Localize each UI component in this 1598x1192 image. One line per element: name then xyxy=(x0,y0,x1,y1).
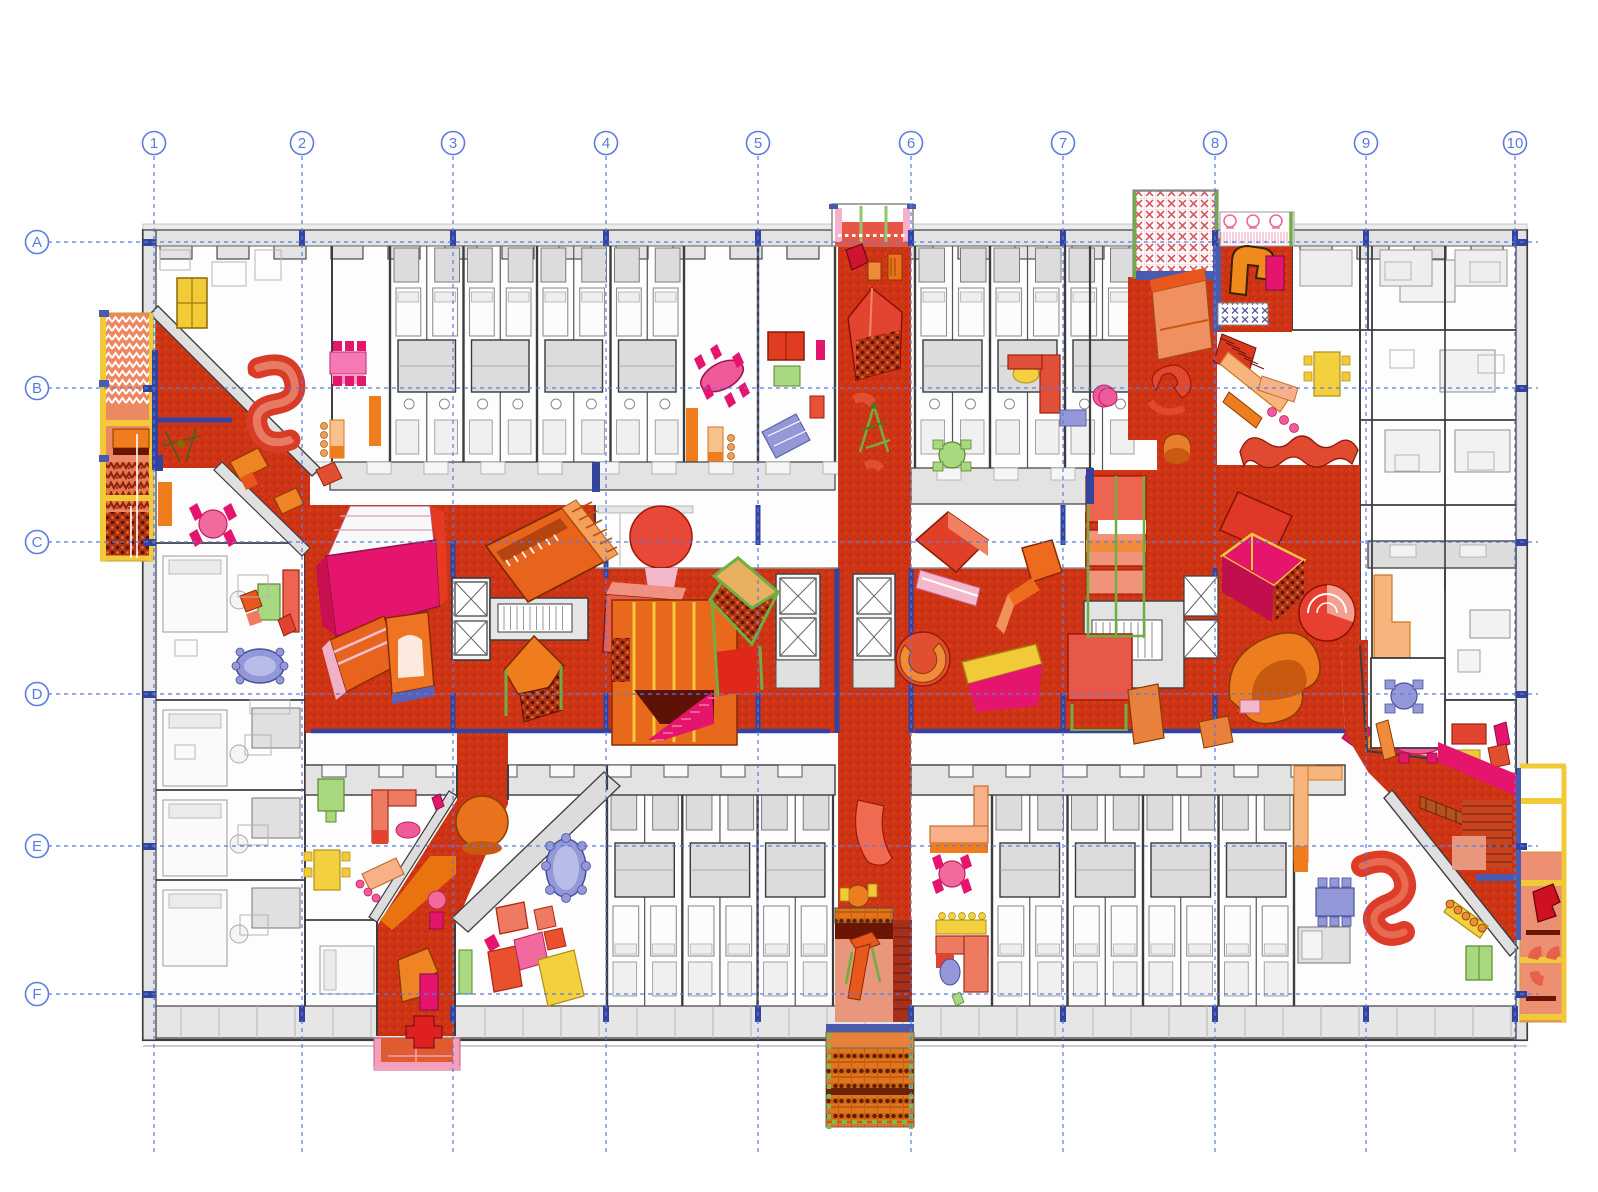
svg-text:6: 6 xyxy=(907,135,915,152)
svg-text:1: 1 xyxy=(150,135,158,152)
svg-text:9: 9 xyxy=(1362,135,1370,152)
svg-text:B: B xyxy=(32,380,42,397)
svg-text:7: 7 xyxy=(1059,135,1067,152)
svg-text:8: 8 xyxy=(1211,135,1219,152)
svg-text:10: 10 xyxy=(1507,135,1524,152)
svg-text:E: E xyxy=(32,838,42,855)
svg-text:4: 4 xyxy=(602,135,610,152)
svg-text:5: 5 xyxy=(754,135,762,152)
svg-text:3: 3 xyxy=(449,135,457,152)
svg-text:C: C xyxy=(32,534,43,551)
svg-text:2: 2 xyxy=(298,135,306,152)
svg-text:D: D xyxy=(32,686,43,703)
svg-text:A: A xyxy=(32,234,42,251)
svg-text:F: F xyxy=(32,986,41,1003)
